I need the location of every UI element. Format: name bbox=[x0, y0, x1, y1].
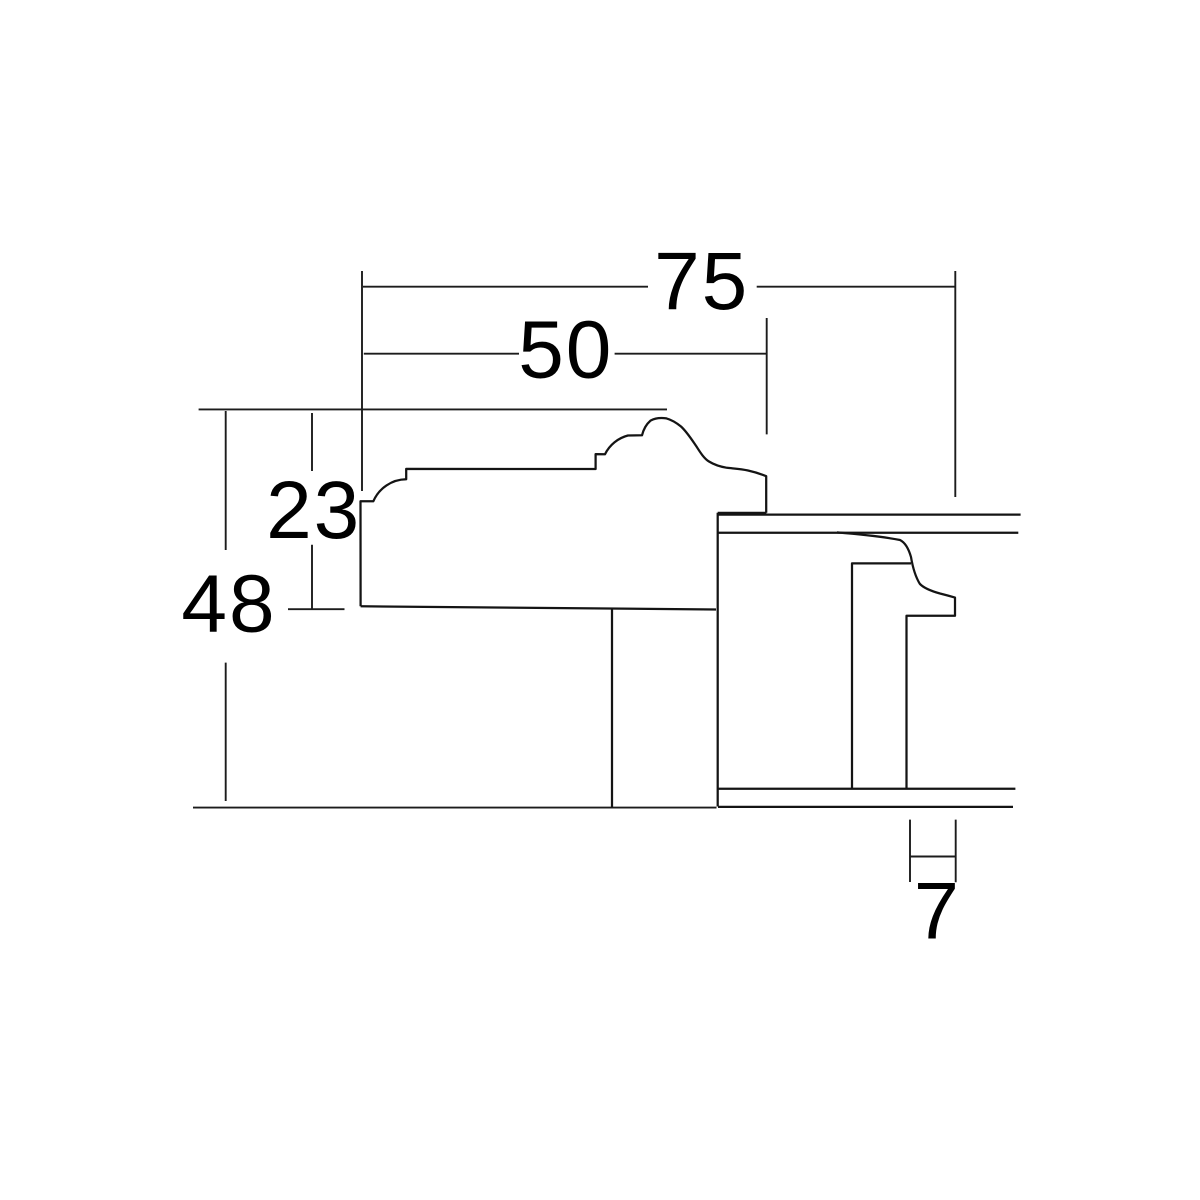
svg-text:75: 75 bbox=[654, 236, 749, 327]
svg-text:48: 48 bbox=[181, 559, 276, 650]
svg-text:23: 23 bbox=[266, 465, 361, 556]
svg-text:50: 50 bbox=[518, 304, 613, 395]
svg-text:7: 7 bbox=[914, 866, 959, 956]
